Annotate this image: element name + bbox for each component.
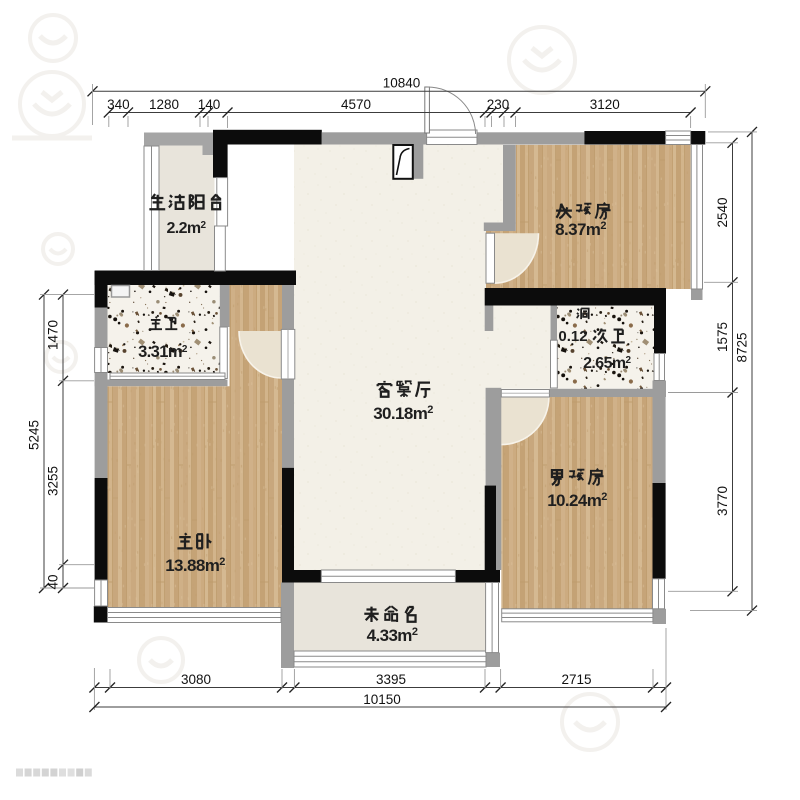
svg-text:10.24m2: 10.24m2 <box>547 491 607 510</box>
svg-text:8.37m2: 8.37m2 <box>555 220 606 239</box>
svg-text:3770: 3770 <box>715 486 730 516</box>
svg-text:3120: 3120 <box>590 97 620 112</box>
svg-text:2.65m2: 2.65m2 <box>583 355 631 372</box>
svg-text:30.18m2: 30.18m2 <box>373 404 433 423</box>
svg-text:140: 140 <box>198 97 221 112</box>
svg-text:5245: 5245 <box>27 420 42 450</box>
svg-text:340: 340 <box>107 97 130 112</box>
svg-text:3395: 3395 <box>376 672 406 687</box>
svg-text:1575: 1575 <box>715 322 730 352</box>
svg-text:10840: 10840 <box>383 76 421 91</box>
svg-text:1280: 1280 <box>149 97 179 112</box>
svg-text:40: 40 <box>46 574 61 589</box>
svg-text:3080: 3080 <box>181 672 211 687</box>
svg-text:2540: 2540 <box>715 197 730 227</box>
svg-text:0.12: 0.12 <box>558 328 587 345</box>
svg-text:4.33m2: 4.33m2 <box>367 626 418 645</box>
svg-text:4570: 4570 <box>341 97 371 112</box>
svg-text:1470: 1470 <box>46 320 61 350</box>
svg-text:2715: 2715 <box>561 672 591 687</box>
svg-text:230: 230 <box>487 97 510 112</box>
svg-text:3255: 3255 <box>46 466 61 496</box>
svg-text:3.31m2: 3.31m2 <box>138 343 188 361</box>
svg-text:13.88m2: 13.88m2 <box>165 556 225 575</box>
svg-text:2.2m2: 2.2m2 <box>166 220 206 237</box>
svg-text:8725: 8725 <box>735 332 750 362</box>
svg-text:10150: 10150 <box>363 692 401 707</box>
